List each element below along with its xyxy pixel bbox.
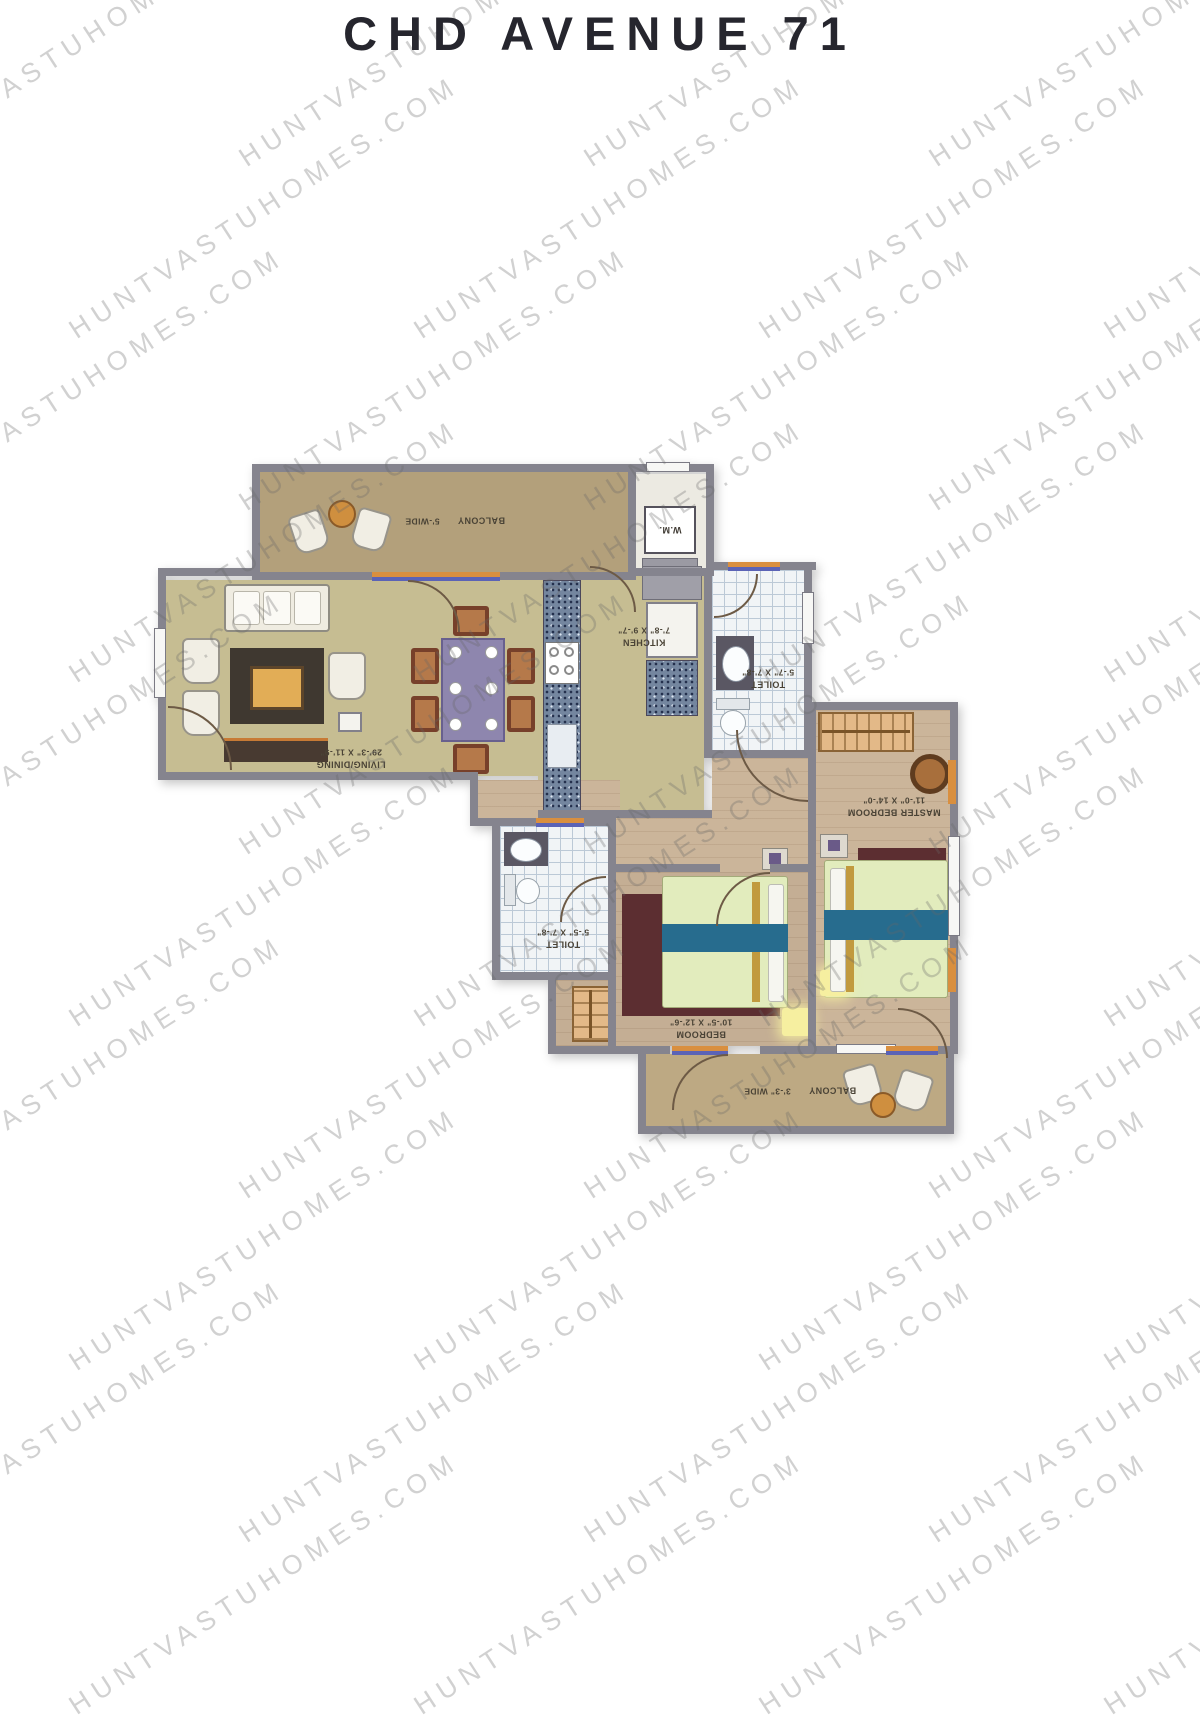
armchair bbox=[182, 638, 220, 684]
washbasin bbox=[510, 838, 542, 862]
wall-window bbox=[948, 836, 960, 936]
kitchen-counter-side bbox=[646, 660, 698, 716]
plate bbox=[449, 718, 462, 731]
wall bbox=[760, 1046, 808, 1054]
wall bbox=[628, 464, 636, 580]
balcony-table bbox=[328, 500, 356, 528]
dining-chair bbox=[453, 744, 489, 774]
room-name: LIVING/DINING bbox=[290, 758, 412, 771]
bedside-decor bbox=[828, 840, 840, 851]
label-living-dining: LIVING/DINING 29'-3" X 11'-9" bbox=[290, 746, 412, 770]
armchair bbox=[328, 652, 366, 700]
wall bbox=[646, 1046, 670, 1054]
wall bbox=[252, 464, 636, 472]
coffee-table bbox=[250, 666, 304, 710]
kitchen-sink bbox=[547, 724, 577, 768]
wardrobe-rail bbox=[822, 730, 910, 733]
stove-hob bbox=[545, 642, 579, 684]
round-chair bbox=[910, 754, 950, 794]
wall bbox=[252, 464, 260, 580]
curtain-strip bbox=[948, 948, 956, 992]
wall bbox=[616, 864, 720, 872]
room-name: KITCHEN bbox=[592, 636, 696, 649]
label-bedroom: BEDROOM 10'-5" X 12'-6" bbox=[640, 1016, 762, 1040]
label-master-bedroom: MASTER BEDROOM 11'-0" X 14'-0" bbox=[836, 794, 952, 818]
balcony-table bbox=[870, 1092, 896, 1118]
wall bbox=[158, 568, 260, 576]
room-dim: 5'-WIDE bbox=[405, 514, 440, 527]
label-balcony-top: BALCONY5'-WIDE bbox=[390, 514, 520, 527]
room-name: BEDROOM bbox=[640, 1028, 762, 1041]
room-name: MASTER BEDROOM bbox=[836, 806, 952, 819]
bed-throw bbox=[662, 924, 788, 952]
plate bbox=[485, 646, 498, 659]
label-toilet-top: TOILET 5'-7" X 7'-8" bbox=[730, 666, 806, 690]
plate bbox=[449, 682, 462, 695]
kitchen-counter bbox=[543, 580, 581, 812]
room-dim: 7'-8" X 9'-7" bbox=[592, 624, 696, 636]
wall bbox=[608, 818, 616, 1046]
room-name: BALCONY bbox=[809, 1084, 856, 1097]
wall bbox=[946, 1046, 954, 1134]
label-kitchen: KITCHEN 7'-8" X 9'-7" bbox=[592, 624, 696, 648]
dining-chair bbox=[507, 696, 535, 732]
bed-throw bbox=[824, 910, 948, 940]
threshold bbox=[372, 577, 500, 581]
dining-chair bbox=[411, 696, 439, 732]
wall bbox=[636, 568, 714, 576]
wc-toilet-bowl bbox=[516, 878, 540, 904]
wall bbox=[158, 772, 478, 780]
wall bbox=[638, 1126, 954, 1134]
room-dim: 3'-3" WIDE bbox=[744, 1084, 791, 1097]
wall bbox=[548, 1046, 646, 1054]
room-name: TOILET bbox=[524, 938, 602, 951]
dining-chair bbox=[411, 648, 439, 684]
wardrobe-rail bbox=[589, 990, 592, 1038]
floor-plan: W.M. bbox=[0, 0, 1200, 1697]
wall bbox=[492, 826, 500, 980]
wall bbox=[706, 464, 714, 570]
wall bbox=[252, 572, 372, 580]
side-console bbox=[338, 712, 362, 732]
plate bbox=[449, 646, 462, 659]
dining-chair bbox=[507, 648, 535, 684]
wall bbox=[808, 702, 816, 1054]
threshold bbox=[728, 567, 780, 571]
plate bbox=[485, 682, 498, 695]
room-name: TOILET bbox=[730, 678, 806, 691]
room-dim: 11'-0" X 14'-0" bbox=[836, 794, 952, 806]
threshold bbox=[536, 823, 584, 827]
room-name: BALCONY bbox=[458, 514, 505, 527]
page: CHD AVENUE 71 bbox=[0, 0, 1200, 1697]
label-toilet-bottom: TOILET 5'-5" X 7'-8" bbox=[524, 926, 602, 950]
sofa-three-seater bbox=[224, 584, 330, 632]
wall bbox=[538, 810, 712, 818]
wall bbox=[638, 1046, 646, 1134]
washing-machine-label: W.M. bbox=[659, 525, 682, 535]
wc-toilet bbox=[716, 698, 750, 710]
page-title: CHD AVENUE 71 bbox=[0, 6, 1200, 61]
room-dim: 5'-5" X 7'-8" bbox=[524, 926, 602, 938]
room-dim: 29'-3" X 11'-9" bbox=[290, 746, 412, 758]
wall-window bbox=[154, 628, 166, 698]
plate bbox=[485, 718, 498, 731]
room-dim: 10'-5" X 12'-6" bbox=[640, 1016, 762, 1028]
wall bbox=[548, 978, 556, 1054]
wall bbox=[808, 702, 958, 710]
label-balcony-bottom: BALCONY3'-3" WIDE bbox=[730, 1084, 870, 1097]
bedside-decor bbox=[769, 853, 781, 864]
wall bbox=[704, 570, 712, 758]
room-dim: 5'-7" X 7'-8" bbox=[730, 666, 806, 678]
wall-window bbox=[646, 462, 690, 472]
floor-lamp bbox=[782, 1008, 810, 1036]
washing-machine: W.M. bbox=[644, 506, 696, 554]
wc-toilet bbox=[504, 874, 516, 906]
wall-window bbox=[802, 592, 814, 644]
